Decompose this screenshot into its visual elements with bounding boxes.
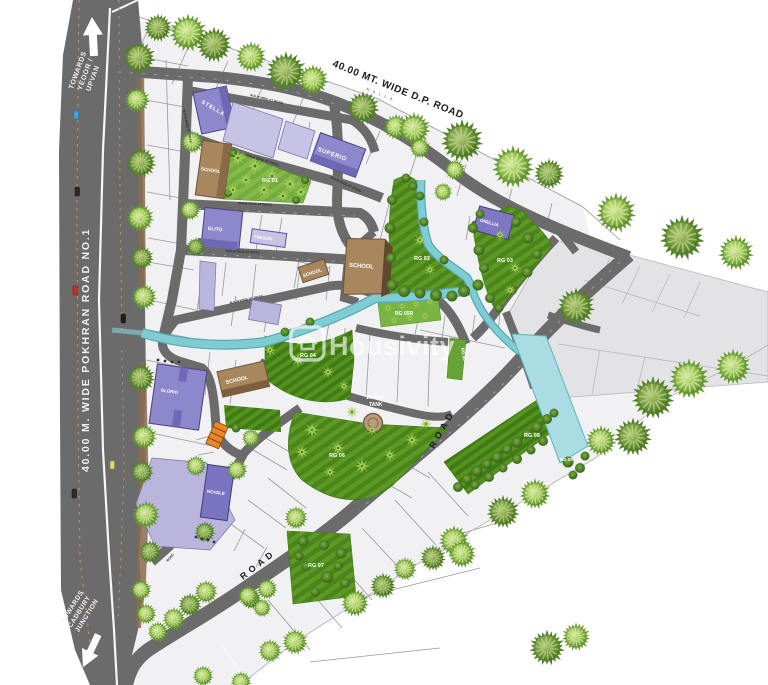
svg-text:RG 07: RG 07 xyxy=(308,563,324,569)
svg-text:RG 04: RG 04 xyxy=(300,353,317,359)
svg-text:RG 05R: RG 05R xyxy=(395,311,413,317)
svg-text:RG 03: RG 03 xyxy=(497,258,513,264)
svg-text:40.00 M. WIDE POKHRAN ROAD: 40.00 M. WIDE POKHRAN ROAD NO.1 xyxy=(80,228,92,472)
svg-text:RG 08: RG 08 xyxy=(524,433,540,439)
svg-text:WATER: WATER xyxy=(366,395,384,401)
svg-text:RD 08: RD 08 xyxy=(560,457,573,462)
svg-text:RG 06: RG 06 xyxy=(329,453,345,459)
svg-text:RG 02: RG 02 xyxy=(414,256,430,262)
svg-text:RG 01: RG 01 xyxy=(262,178,278,184)
svg-text:Housivity: Housivity xyxy=(329,331,455,361)
svg-text:TANK: TANK xyxy=(369,402,383,408)
